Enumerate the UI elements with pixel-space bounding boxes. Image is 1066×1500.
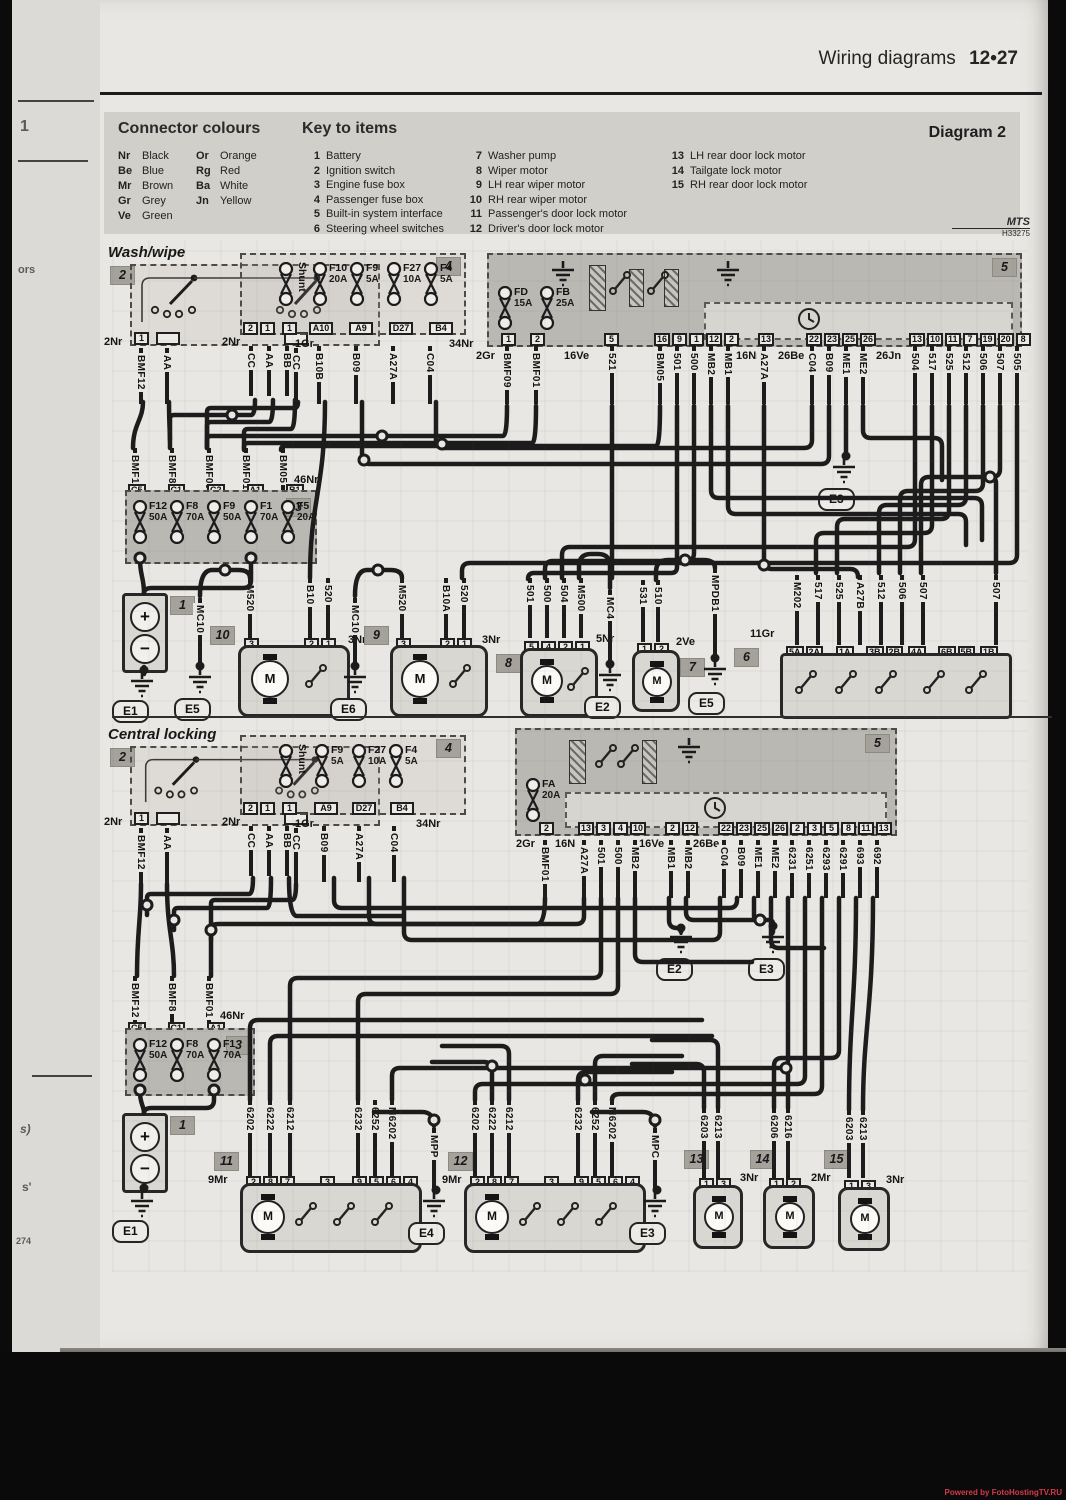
margin-fragment: ors bbox=[18, 264, 35, 276]
previous-page-sliver: 1 ors s) s' 274 bbox=[12, 0, 100, 1352]
fuse-name: F27 bbox=[368, 744, 386, 756]
colour-code: Jn bbox=[196, 195, 220, 210]
key-item: 13LH rear door lock motor bbox=[666, 150, 807, 165]
header-title: Wiring diagrams bbox=[819, 48, 956, 69]
key-item: 1Battery bbox=[302, 150, 444, 165]
fuse-icon bbox=[278, 262, 294, 306]
key-item-label: Passenger's door lock motor bbox=[488, 208, 627, 223]
key-item: 10RH rear wiper motor bbox=[464, 194, 627, 209]
key-item-number: 15 bbox=[666, 179, 684, 194]
colour-name: Green bbox=[142, 210, 173, 225]
connector-colours-col2: OrOrangeRgRedBaWhiteJnYellow bbox=[196, 150, 257, 210]
key-item: 15RH rear door lock motor bbox=[666, 179, 807, 194]
colour-row: BaWhite bbox=[196, 180, 257, 195]
key-item-number: 1 bbox=[302, 150, 320, 165]
key-item: 4Passenger fuse box bbox=[302, 194, 444, 209]
signature: MTS H33275 bbox=[952, 216, 1030, 239]
scanned-page: 1 ors s) s' 274 Wiring diagrams 12•27 Co… bbox=[0, 0, 1066, 1500]
fuse-rating: 15A bbox=[514, 298, 532, 309]
relay-coil bbox=[629, 269, 644, 307]
key-item-number: 14 bbox=[666, 165, 684, 180]
fuse-icon bbox=[314, 744, 330, 788]
pin: 1 bbox=[282, 802, 297, 815]
relay-contact-icon bbox=[647, 271, 669, 295]
key-item: 3Engine fuse box bbox=[302, 179, 444, 194]
fuse: F1020A bbox=[312, 262, 349, 306]
colour-code: Be bbox=[118, 165, 142, 180]
fuse-name: FB bbox=[556, 286, 574, 298]
key-item-number: 9 bbox=[464, 179, 482, 194]
margin-fragment: s' bbox=[22, 1180, 32, 1194]
ground-icon bbox=[675, 738, 703, 764]
clock-icon bbox=[797, 307, 821, 331]
divider bbox=[18, 100, 94, 102]
key-item-number: 6 bbox=[302, 223, 320, 238]
colour-name: Black bbox=[142, 150, 169, 165]
fuse-name: F4 bbox=[405, 744, 418, 756]
key-item-number: 10 bbox=[464, 194, 482, 209]
page: 1 ors s) s' 274 Wiring diagrams 12•27 Co… bbox=[12, 0, 1048, 1352]
key-item-label: Washer pump bbox=[488, 150, 556, 165]
colour-name: Grey bbox=[142, 195, 166, 210]
key-item-number: 4 bbox=[302, 194, 320, 209]
section-title-central-locking: Central locking bbox=[108, 726, 216, 743]
fuse-icon bbox=[525, 778, 541, 822]
key-item: 7Washer pump bbox=[464, 150, 627, 165]
key-item-number: 7 bbox=[464, 150, 482, 165]
page-number: 12•27 bbox=[969, 48, 1018, 69]
pin: A9 bbox=[349, 322, 373, 335]
margin-fragment: 274 bbox=[16, 1236, 31, 1246]
fuse: F95A bbox=[314, 744, 351, 788]
fuse-icon bbox=[386, 262, 402, 306]
margin-fragment: s) bbox=[20, 1122, 31, 1136]
legend-colours-title: Connector colours bbox=[118, 120, 260, 138]
key-item-label: RH rear wiper motor bbox=[488, 194, 587, 209]
relay-coil bbox=[589, 265, 606, 311]
page-header: Wiring diagrams 12•27 bbox=[819, 48, 1018, 70]
margin-fragment: 1 bbox=[20, 118, 29, 136]
key-item: 11Passenger's door lock motor bbox=[464, 208, 627, 223]
fuse: F2710A bbox=[386, 262, 423, 306]
fuse: FB25A bbox=[539, 286, 575, 330]
fuse-icon bbox=[349, 262, 365, 306]
colour-code: Rg bbox=[196, 165, 220, 180]
key-item-label: Ignition switch bbox=[326, 165, 395, 180]
colour-code: Or bbox=[196, 150, 220, 165]
colour-name: Orange bbox=[220, 150, 257, 165]
fuse-rating: 5A bbox=[405, 756, 418, 767]
fuse: F2710A bbox=[351, 744, 388, 788]
key-item: 5Built-in system interface bbox=[302, 208, 444, 223]
clock-icon bbox=[703, 796, 727, 820]
sysbox5-fuses: FD15A FB25A bbox=[497, 286, 575, 330]
relay-contact-icon bbox=[617, 744, 639, 768]
diagram-label: Diagram 2 bbox=[929, 124, 1006, 142]
colour-row: GrGrey bbox=[118, 195, 173, 210]
pin: D27 bbox=[389, 322, 413, 335]
key-items-col3: 13LH rear door lock motor14Tailgate lock… bbox=[666, 150, 807, 194]
key-item-number: 5 bbox=[302, 208, 320, 223]
fuse-rating: 20A bbox=[542, 790, 560, 801]
fuse-name: F9 bbox=[331, 744, 344, 756]
colour-code: Nr bbox=[118, 150, 142, 165]
key-item-label: Battery bbox=[326, 150, 361, 165]
fuse-icon bbox=[351, 744, 367, 788]
item-badge-system-interface: 5 bbox=[865, 734, 890, 753]
ground-icon bbox=[714, 261, 742, 287]
signature-brand: MTS bbox=[952, 216, 1030, 229]
key-item-number: 11 bbox=[464, 208, 482, 223]
colour-row: VeGreen bbox=[118, 210, 173, 225]
colour-name: Red bbox=[220, 165, 240, 180]
pin: 2 bbox=[243, 322, 258, 335]
item-badge-system-interface: 5 bbox=[992, 258, 1017, 277]
wire-harness bbox=[112, 340, 1052, 718]
pin: B4 bbox=[390, 802, 414, 815]
item-badge-passenger-fusebox: 4 bbox=[436, 739, 461, 758]
legend-key-title: Key to items bbox=[302, 120, 397, 138]
fuse-name: FA bbox=[542, 778, 560, 790]
key-item-number: 13 bbox=[666, 150, 684, 165]
colour-row: OrOrange bbox=[196, 150, 257, 165]
relay-coil bbox=[569, 740, 586, 784]
pin: B4 bbox=[429, 322, 453, 335]
key-item-label: Tailgate lock motor bbox=[690, 165, 782, 180]
colour-row: MrBrown bbox=[118, 180, 173, 195]
colour-row: NrBlack bbox=[118, 150, 173, 165]
shunt-fuse bbox=[278, 262, 294, 311]
relay-contact-icon bbox=[609, 271, 631, 295]
fuse: FA20A bbox=[525, 778, 561, 822]
scan-black-band bbox=[0, 1352, 1066, 1500]
watermark: Powered by FotoHostingTV.RU bbox=[945, 1488, 1063, 1497]
ground-icon bbox=[549, 261, 577, 287]
key-items-col2: 7Washer pump8Wiper motor9LH rear wiper m… bbox=[464, 150, 627, 237]
colour-row: BeBlue bbox=[118, 165, 173, 180]
fuse: F95A bbox=[349, 262, 386, 306]
colour-name: White bbox=[220, 180, 248, 195]
shunt-label: Shunt bbox=[296, 262, 308, 292]
pin: 1 bbox=[260, 322, 275, 335]
colour-code: Ve bbox=[118, 210, 142, 225]
section-divider bbox=[112, 716, 1052, 718]
colour-code: Gr bbox=[118, 195, 142, 210]
pin: 2 bbox=[243, 802, 258, 815]
divider bbox=[32, 1075, 92, 1077]
key-item: 14Tailgate lock motor bbox=[666, 165, 807, 180]
relay-coil bbox=[642, 740, 657, 784]
connector-colours-col1: NrBlackBeBlueMrBrownGrGreyVeGreen bbox=[118, 150, 173, 225]
fuse-name: FD bbox=[514, 286, 532, 298]
divider bbox=[18, 160, 88, 162]
fuse-icon bbox=[539, 286, 555, 330]
signature-code: H33275 bbox=[952, 229, 1030, 239]
colour-code: Mr bbox=[118, 180, 142, 195]
key-item: 8Wiper motor bbox=[464, 165, 627, 180]
shunt-label: Shunt bbox=[296, 744, 308, 774]
colour-name: Brown bbox=[142, 180, 173, 195]
fuse-icon bbox=[423, 262, 439, 306]
key-item-label: Passenger fuse box bbox=[326, 194, 423, 209]
pin: A9 bbox=[314, 802, 338, 815]
key-item-label: Wiper motor bbox=[488, 165, 548, 180]
key-item-label: LH rear wiper motor bbox=[488, 179, 585, 194]
fuse-icon bbox=[312, 262, 328, 306]
section-title-washwipe: Wash/wipe bbox=[108, 244, 185, 261]
key-item: 6Steering wheel switches bbox=[302, 223, 444, 238]
fuse: F45A bbox=[423, 262, 460, 306]
key-item-label: Steering wheel switches bbox=[326, 223, 444, 238]
colour-name: Blue bbox=[142, 165, 164, 180]
fuse-icon bbox=[278, 744, 294, 788]
fuse-name: F9 bbox=[366, 262, 379, 274]
legend-panel: Connector colours NrBlackBeBlueMrBrownGr… bbox=[104, 112, 1020, 234]
key-item-number: 8 bbox=[464, 165, 482, 180]
fuse: F45A bbox=[388, 744, 425, 788]
fuse-name: F27 bbox=[403, 262, 421, 274]
fuse: FD15A bbox=[497, 286, 533, 330]
key-item-label: LH rear door lock motor bbox=[690, 150, 806, 165]
key-item-label: Driver's door lock motor bbox=[488, 223, 604, 238]
header-rule bbox=[100, 92, 1042, 95]
key-item-number: 2 bbox=[302, 165, 320, 180]
fuse-rating: 25A bbox=[556, 298, 574, 309]
fuse-rating: 10A bbox=[368, 756, 386, 767]
fuse-rating: 5A bbox=[440, 274, 453, 285]
key-item: 2Ignition switch bbox=[302, 165, 444, 180]
key-item: 9LH rear wiper motor bbox=[464, 179, 627, 194]
fuse-rating: 20A bbox=[329, 274, 347, 285]
key-items-col1: 1Battery2Ignition switch3Engine fuse box… bbox=[302, 150, 444, 237]
fuse-icon bbox=[497, 286, 513, 330]
colour-code: Ba bbox=[196, 180, 220, 195]
pin: A10 bbox=[309, 322, 333, 335]
wire-harness bbox=[112, 820, 1052, 1260]
pin: 1 bbox=[260, 802, 275, 815]
key-item: 12Driver's door lock motor bbox=[464, 223, 627, 238]
colour-name: Yellow bbox=[220, 195, 251, 210]
fuse-rating: 5A bbox=[331, 756, 344, 767]
key-item-label: Built-in system interface bbox=[326, 208, 443, 223]
fuse-name: F4 bbox=[440, 262, 453, 274]
relay-contact-icon bbox=[595, 744, 617, 768]
fuse-rating: 5A bbox=[366, 274, 379, 285]
fuse-icon bbox=[388, 744, 404, 788]
key-item-number: 12 bbox=[464, 223, 482, 238]
fusebox4-fuses: F1020A F95A F2710A F45A bbox=[312, 262, 460, 306]
key-item-number: 3 bbox=[302, 179, 320, 194]
colour-row: RgRed bbox=[196, 165, 257, 180]
key-item-label: RH rear door lock motor bbox=[690, 179, 807, 194]
pin: 1 bbox=[282, 322, 297, 335]
pin: D27 bbox=[352, 802, 376, 815]
fuse-rating: 10A bbox=[403, 274, 421, 285]
fuse-name: F10 bbox=[329, 262, 347, 274]
colour-row: JnYellow bbox=[196, 195, 257, 210]
key-item-label: Engine fuse box bbox=[326, 179, 405, 194]
